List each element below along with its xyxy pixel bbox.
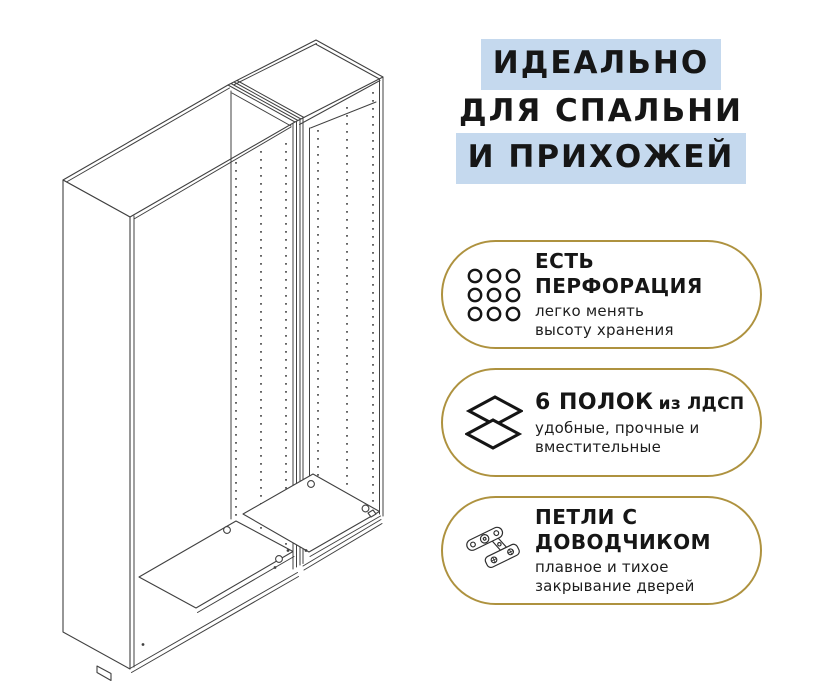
headline-plain-2: ДЛЯ СПАЛЬНИ [459, 88, 743, 135]
badge-title-line: 6 ПОЛОК из ЛДСП [535, 389, 744, 418]
badge-title-line: ДОВОДЧИКОМ [535, 530, 711, 555]
badge-subtitle-line: легко менять [535, 302, 703, 321]
badge-title-main: 6 ПОЛОК [535, 390, 654, 415]
shelves-layers-icon [461, 395, 527, 451]
product-infographic: ИДЕАЛЬНО ДЛЯ СПАЛЬНИ И ПРИХОЖЕЙ ЕСТЬ ПЕР… [0, 0, 816, 700]
badge-title-line: ЕСТЬ [535, 249, 703, 274]
badge-subtitle-line: высоту хранения [535, 321, 703, 340]
badge-subtitle-line: плавное и тихое [535, 558, 711, 577]
badge-text: ЕСТЬ ПЕРФОРАЦИЯ легко менять высоту хран… [535, 249, 703, 340]
feature-badge-list: ЕСТЬ ПЕРФОРАЦИЯ легко менять высоту хран… [441, 240, 762, 624]
hinge-icon [461, 518, 527, 584]
perforation-grid-icon [461, 266, 527, 324]
feature-badge-shelves: 6 ПОЛОК из ЛДСП удобные, прочные и вмест… [441, 368, 762, 477]
badge-subtitle-line: закрывание дверей [535, 577, 711, 596]
floor-panels [97, 474, 380, 681]
headline-highlight-3: И ПРИХОЖЕЙ [456, 133, 747, 184]
badge-text: ПЕТЛИ С ДОВОДЧИКОМ плавное и тихое закры… [535, 505, 711, 596]
headline-line-2: ДЛЯ СПАЛЬНИ [440, 88, 762, 135]
headline-highlight-1: ИДЕАЛЬНО [481, 39, 721, 90]
badge-text: 6 ПОЛОК из ЛДСП удобные, прочные и вмест… [535, 389, 744, 457]
badge-title-line: ПЕРФОРАЦИЯ [535, 274, 703, 299]
feature-badge-perforation: ЕСТЬ ПЕРФОРАЦИЯ легко менять высоту хран… [441, 240, 762, 349]
headline-line-1: ИДЕАЛЬНО [440, 41, 762, 88]
badge-subtitle-line: вместительные [535, 438, 744, 457]
badge-title-line: ПЕТЛИ С [535, 505, 711, 530]
headline: ИДЕАЛЬНО ДЛЯ СПАЛЬНИ И ПРИХОЖЕЙ [440, 41, 762, 182]
feature-badge-hinges: ПЕТЛИ С ДОВОДЧИКОМ плавное и тихое закры… [441, 496, 762, 605]
badge-title-suffix: из ЛДСП [659, 394, 745, 414]
headline-line-3: И ПРИХОЖЕЙ [440, 135, 762, 182]
badge-subtitle-line: удобные, прочные и [535, 419, 744, 438]
